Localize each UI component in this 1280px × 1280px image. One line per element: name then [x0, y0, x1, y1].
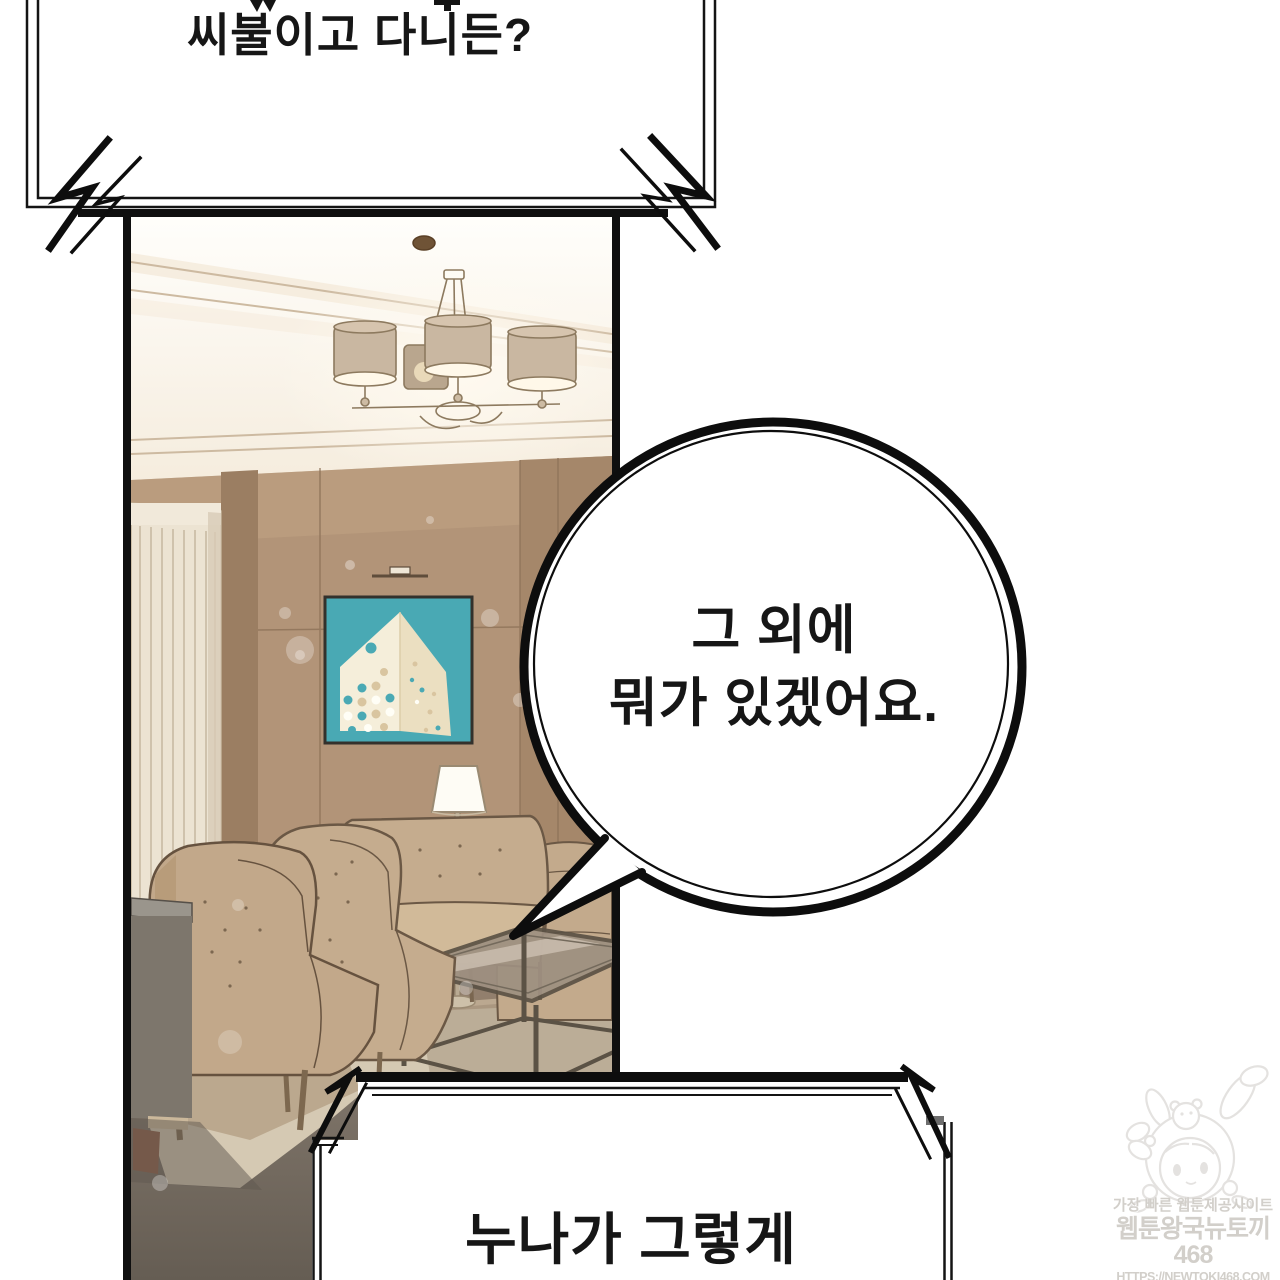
speech-bubble-bottom	[312, 1068, 952, 1280]
watermark-mascot bunny-hood-girl-icon	[1124, 1063, 1271, 1214]
comic-artwork	[0, 0, 1280, 1280]
speech-bubble-round	[513, 422, 1022, 936]
webtoon-page: 씨불이고 다니든? 그 외에 뭐가 있겠어요. 누나가 그렇게 가장 빠른 웹툰…	[0, 0, 1280, 1280]
ceiling-sensor	[413, 236, 435, 250]
curtain-valance	[131, 503, 221, 525]
wall-art-painting	[325, 597, 472, 743]
